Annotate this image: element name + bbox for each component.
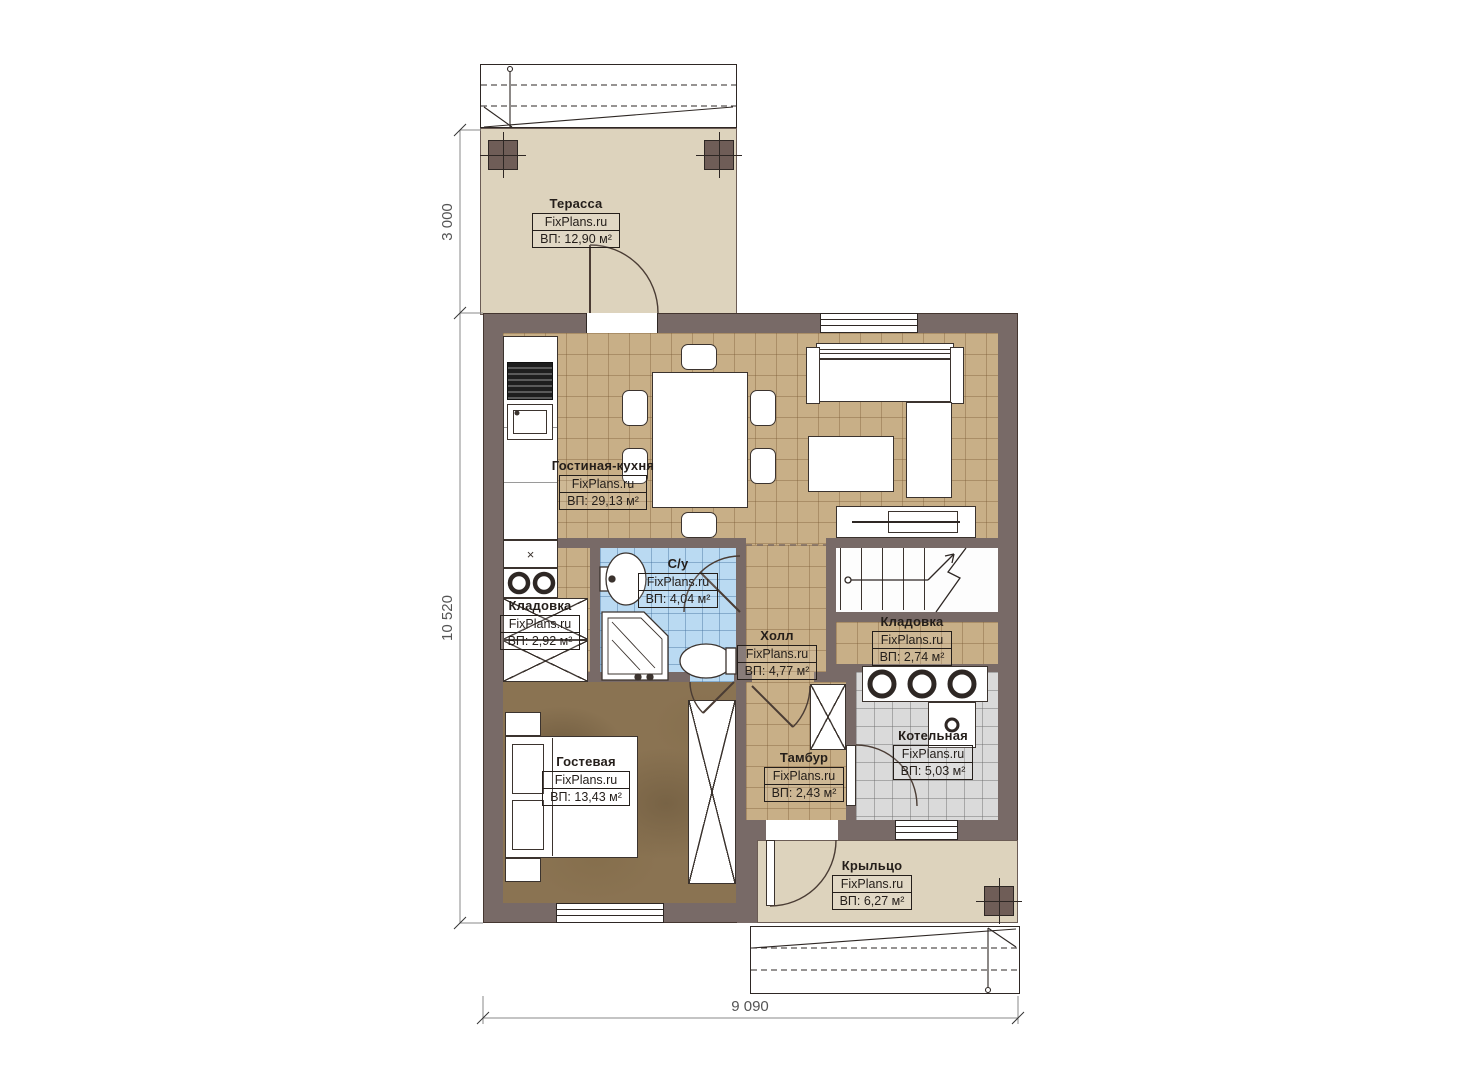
terrace-column-left — [488, 140, 518, 170]
room-area: ВП: 12,90 м² — [533, 231, 619, 247]
door-leaf — [766, 840, 775, 906]
room-label-porch: Крыльцо FixPlans.ru ВП: 6,27 м² — [812, 858, 932, 910]
room-area: ВП: 29,13 м² — [560, 493, 646, 509]
room-label-living-kitchen: Гостиная-кухня FixPlans.ru ВП: 29,13 м² — [538, 458, 668, 510]
room-label-boiler: Котельная FixPlans.ru ВП: 5,03 м² — [876, 728, 990, 780]
wall-segment — [826, 538, 998, 548]
sofa-armrest — [950, 347, 964, 404]
porch-door-opening — [766, 820, 838, 840]
room-name: Тамбур — [752, 750, 856, 765]
staircase-treads — [840, 548, 940, 610]
wall-segment — [736, 545, 746, 557]
room-label-vestibule: Тамбур FixPlans.ru ВП: 2,43 м² — [752, 750, 856, 802]
brand-watermark: FixPlans.ru — [560, 476, 646, 493]
room-label-storage-left: Кладовка FixPlans.ru ВП: 2,92 м² — [486, 598, 594, 650]
vestibule-shelving — [810, 684, 846, 750]
room-area: ВП: 4,77 м² — [738, 663, 817, 679]
wall-segment — [838, 820, 856, 840]
wall-segment — [737, 830, 757, 923]
room-area: ВП: 2,92 м² — [501, 633, 580, 649]
room-area: ВП: 5,03 м² — [894, 763, 973, 779]
sofa-seat — [816, 359, 954, 402]
boiler-equipment-bench — [862, 666, 988, 702]
kitchen-sink-basin — [513, 410, 547, 434]
brand-watermark: FixPlans.ru — [543, 772, 629, 789]
terrace-door-opening — [586, 313, 658, 333]
room-name: Кладовка — [486, 598, 594, 613]
terrace-column-right — [704, 140, 734, 170]
wardrobe — [688, 700, 736, 884]
sofa-back — [816, 343, 954, 359]
wall-segment — [958, 820, 998, 840]
brand-watermark: FixPlans.ru — [894, 746, 973, 763]
brand-watermark: FixPlans.ru — [501, 616, 580, 633]
living-room-window — [820, 313, 918, 333]
room-name: С/у — [622, 556, 734, 571]
room-name: Кладовка — [858, 614, 966, 629]
room-label-storage-right: Кладовка FixPlans.ru ВП: 2,74 м² — [858, 614, 966, 666]
room-label-terrace: Терасса FixPlans.ru ВП: 12,90 м² — [510, 196, 642, 248]
room-name: Крыльцо — [812, 858, 932, 873]
room-area: ВП: 2,43 м² — [765, 785, 844, 801]
room-area: ВП: 13,43 м² — [543, 789, 629, 805]
dining-chair — [622, 390, 648, 426]
porch-column — [984, 886, 1014, 916]
dining-chair — [750, 448, 776, 484]
sofa-armrest — [806, 347, 820, 404]
pillow — [512, 800, 544, 850]
room-name: Гостиная-кухня — [538, 458, 668, 473]
brand-watermark: FixPlans.ru — [873, 632, 952, 649]
brand-watermark: FixPlans.ru — [833, 876, 912, 893]
wall-segment — [856, 820, 895, 840]
boiler-room-window — [895, 820, 958, 840]
tv-panel — [888, 511, 958, 533]
dining-chair — [681, 344, 717, 370]
nightstand — [505, 712, 541, 736]
dim-house-side: 10 520 — [439, 595, 456, 641]
room-name: Котельная — [876, 728, 990, 743]
wall-segment — [846, 672, 856, 745]
brand-watermark: FixPlans.ru — [533, 214, 619, 231]
brand-watermark: FixPlans.ru — [738, 646, 817, 663]
terrace-steps — [480, 64, 737, 128]
coffee-table — [808, 436, 894, 492]
room-area: ВП: 6,27 м² — [833, 893, 912, 909]
room-label-hall: Холл FixPlans.ru ВП: 4,77 м² — [728, 628, 826, 680]
floor-plan-canvas: × — [0, 0, 1473, 1080]
wall-segment — [736, 682, 746, 830]
room-name: Холл — [728, 628, 826, 643]
nightstand — [505, 858, 541, 882]
hob-unit — [503, 568, 558, 598]
stove — [507, 362, 553, 400]
sofa-chaise — [906, 402, 952, 498]
room-name: Терасса — [510, 196, 642, 211]
dim-house-front: 9 090 — [731, 998, 769, 1015]
wall-segment — [556, 538, 746, 548]
brand-watermark: FixPlans.ru — [639, 574, 718, 591]
dining-chair — [681, 512, 717, 538]
dim-terrace-depth: 3 000 — [439, 203, 456, 241]
room-area: ВП: 2,74 м² — [873, 649, 952, 665]
brand-watermark: FixPlans.ru — [765, 768, 844, 785]
kitchen-cabinet: × — [503, 540, 558, 568]
porch-steps — [750, 926, 1020, 994]
room-label-bathroom: С/у FixPlans.ru ВП: 4,04 м² — [622, 556, 734, 608]
room-name: Гостевая — [528, 754, 644, 769]
room-label-guest: Гостевая FixPlans.ru ВП: 13,43 м² — [528, 754, 644, 806]
room-area: ВП: 4,04 м² — [639, 591, 718, 607]
guest-room-window — [556, 903, 664, 923]
dining-chair — [750, 390, 776, 426]
